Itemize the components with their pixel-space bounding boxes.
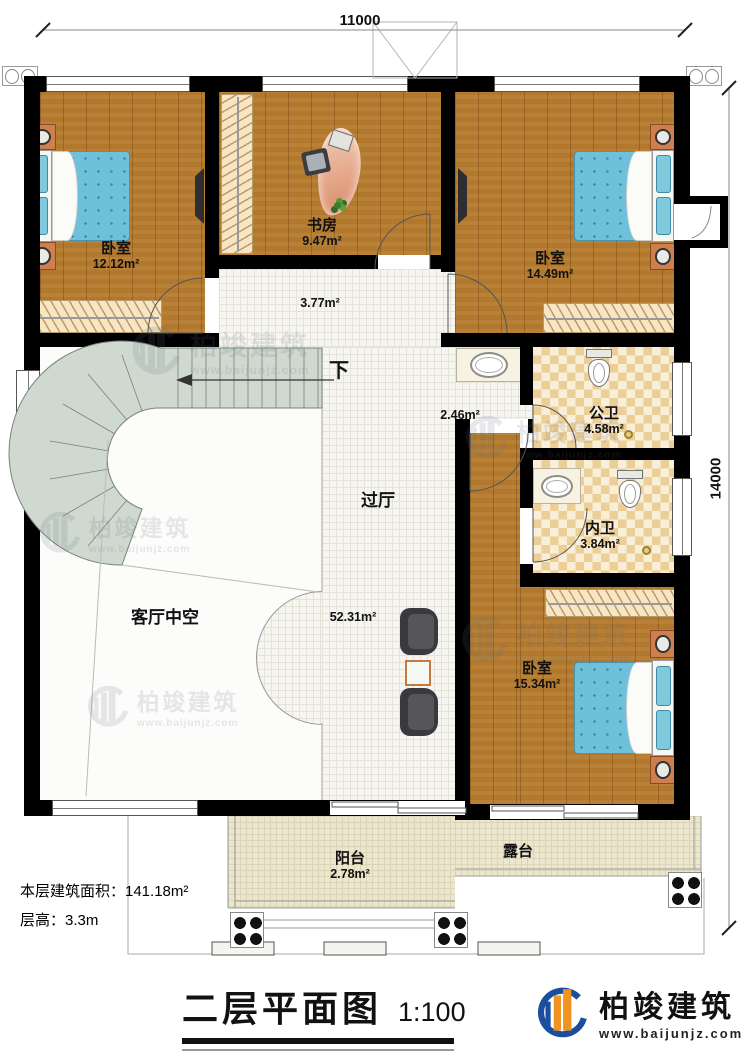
- area-label-wash: 2.46m²: [412, 408, 508, 422]
- bed-br-sheet: [626, 662, 652, 754]
- wall-study-bottom-a: [219, 255, 378, 269]
- page-title: 二层平面图: [182, 980, 382, 1032]
- down-label: 下: [322, 360, 356, 383]
- bed-br-pillow: [656, 710, 671, 750]
- room-label-terrace: 露台: [468, 843, 568, 860]
- wash-basin: [470, 352, 508, 378]
- window-bottom-left: [52, 800, 198, 816]
- window-top-3: [494, 76, 640, 92]
- company-name: 柏竣建筑: [599, 982, 743, 1026]
- wardrobe-study: [221, 94, 253, 254]
- bed-tl-sheet: [52, 151, 78, 241]
- window-right-bath1: [672, 362, 692, 436]
- dim-right-label: 14000: [708, 439, 725, 519]
- side-table: [405, 660, 431, 686]
- armchair: [400, 608, 438, 655]
- balcony-column: [230, 912, 264, 948]
- floor-info: 本层建筑面积：141.18m² 层高：3.3m: [20, 878, 188, 935]
- window-top-1: [46, 76, 190, 92]
- wall-bath-divider: [520, 448, 690, 460]
- wall-bedroom-br-left: [455, 419, 470, 820]
- room-label-passage: 过厅: [328, 491, 428, 511]
- room-label-study: 书房 9.47m²: [272, 217, 372, 249]
- scale-label: 1:100: [398, 997, 466, 1028]
- dormer-outline: [373, 22, 457, 78]
- corner-column: [686, 66, 722, 86]
- plant: [334, 202, 341, 209]
- ensuite-basin: [541, 475, 573, 498]
- wall-stair-top: [24, 333, 219, 347]
- title-block: 二层平面图 1:100: [182, 980, 466, 1032]
- niche-wall-right: [720, 196, 728, 248]
- tv-bedroom-tl: [195, 168, 204, 224]
- tv-bedroom-tr: [458, 168, 467, 224]
- wardrobe-tr: [543, 303, 675, 333]
- floor-area-text: 本层建筑面积：141.18m²: [20, 878, 188, 907]
- wall-bedroom-br-top-b: [528, 419, 533, 433]
- terrace-column: [668, 872, 702, 908]
- nightstand: [650, 243, 676, 270]
- bedroom-br-floor-entry: [470, 433, 520, 804]
- room-label-bedroom-tl: 卧室 12.12m²: [66, 240, 166, 272]
- bed-tr-pillow: [656, 197, 671, 235]
- room-label-balcony: 阳台 2.78m²: [300, 850, 400, 882]
- room-label-bedroom-tr: 卧室 14.49m²: [500, 250, 600, 282]
- wall-bedroom-tl-right: [205, 92, 219, 278]
- wardrobe-br: [545, 589, 675, 617]
- wall-bedroom-tr-bottom: [441, 333, 690, 347]
- window-top-2: [262, 76, 408, 92]
- area-label-passage: 52.31m²: [303, 610, 403, 624]
- toilet-tank: [617, 470, 643, 479]
- room-label-bedroom-br: 卧室 15.34m²: [487, 660, 587, 692]
- wall-ensuite-bottom: [520, 573, 690, 587]
- floor-plan-canvas: 柏竣建筑www.baijunjz.com 柏竣建筑www.baijunjz.co…: [0, 0, 750, 1056]
- area-label-upper-hall: 3.77m²: [270, 296, 370, 310]
- room-label-public-bath: 公卫 4.58m²: [554, 405, 654, 437]
- toilet-tank: [586, 349, 612, 358]
- wall-ensuite-left-a: [520, 460, 533, 508]
- room-label-ensuite-bath: 内卫 3.84m²: [550, 520, 650, 552]
- nightstand: [650, 124, 676, 150]
- dim-top-label: 11000: [310, 12, 410, 29]
- wardrobe-tl: [30, 300, 162, 333]
- company-website: www.baijunjz.com: [599, 1026, 743, 1041]
- window-right-bath2: [672, 478, 692, 556]
- wall-study-bottom-b: [430, 255, 441, 269]
- wall-bath-left-a: [520, 347, 533, 405]
- wall-study-right: [441, 92, 455, 272]
- armchair: [400, 688, 438, 736]
- wall-bottom-bedroom: [455, 804, 690, 820]
- bed-br-pillow: [656, 666, 671, 706]
- company-logo-icon: [533, 983, 589, 1041]
- floor-height-text: 层高：3.3m: [20, 907, 188, 936]
- bed-tr-sheet: [626, 151, 652, 241]
- room-label-living-void: 客厅中空: [90, 608, 240, 628]
- title-underline: [182, 1038, 454, 1044]
- nightstand: [650, 756, 676, 784]
- title-underline-thin: [182, 1049, 454, 1051]
- living-void-area: [40, 347, 322, 802]
- balcony-column: [434, 912, 468, 948]
- niche-interior: [674, 204, 720, 240]
- nightstand: [650, 630, 676, 658]
- company-logo: 柏竣建筑 www.baijunjz.com: [533, 982, 743, 1041]
- bed-tr-pillow: [656, 155, 671, 193]
- window-left: [16, 370, 40, 476]
